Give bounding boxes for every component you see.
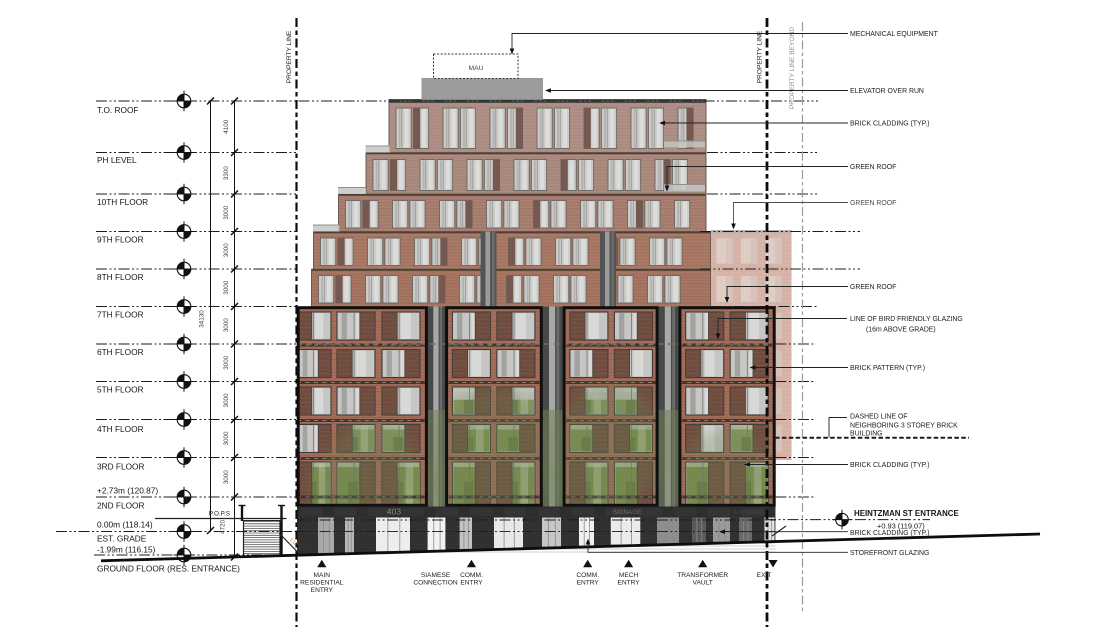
svg-text:8TH FLOOR: 8TH FLOOR bbox=[97, 272, 144, 282]
svg-text:CONNECTION: CONNECTION bbox=[413, 579, 458, 586]
svg-text:-1.99m (116.15): -1.99m (116.15) bbox=[97, 545, 156, 555]
svg-text:BRICK CLADDING (TYP.): BRICK CLADDING (TYP.) bbox=[850, 121, 930, 128]
svg-text:NEIGHBORING 3 STOREY BRICK: NEIGHBORING 3 STOREY BRICK bbox=[850, 422, 958, 429]
svg-text:3000: 3000 bbox=[223, 205, 230, 220]
svg-text:3000: 3000 bbox=[223, 243, 230, 258]
svg-text:COMM.: COMM. bbox=[460, 572, 483, 579]
svg-text:10TH FLOOR: 10TH FLOOR bbox=[97, 197, 148, 207]
svg-text:MECHANICAL EQUIPMENT: MECHANICAL EQUIPMENT bbox=[850, 31, 939, 38]
svg-text:LINE OF BIRD FRIENDLY GLAZING: LINE OF BIRD FRIENDLY GLAZING bbox=[850, 316, 963, 323]
svg-text:HEINTZMAN ST ENTRANCE: HEINTZMAN ST ENTRANCE bbox=[854, 509, 959, 518]
svg-text:TRANSFORMER: TRANSFORMER bbox=[677, 572, 728, 579]
svg-text:MAIN: MAIN bbox=[314, 572, 331, 579]
svg-text:GREEN ROOF: GREEN ROOF bbox=[850, 200, 896, 207]
svg-text:9TH FLOOR: 9TH FLOOR bbox=[97, 235, 144, 245]
svg-text:EXIT: EXIT bbox=[757, 572, 772, 579]
svg-text:34130: 34130 bbox=[199, 310, 206, 328]
svg-text:PROPERTY LINE: PROPERTY LINE bbox=[757, 30, 764, 83]
svg-text:3000: 3000 bbox=[223, 470, 230, 485]
svg-text:VAULT: VAULT bbox=[693, 579, 713, 586]
svg-text:3300: 3300 bbox=[223, 166, 230, 181]
svg-text:PH LEVEL: PH LEVEL bbox=[97, 155, 137, 165]
svg-text:ENTRY: ENTRY bbox=[577, 579, 600, 586]
svg-text:ELEVATOR OVER RUN: ELEVATOR OVER RUN bbox=[850, 88, 924, 95]
svg-text:3RD FLOOR: 3RD FLOOR bbox=[97, 462, 144, 472]
svg-text:GREEN ROOF: GREEN ROOF bbox=[850, 164, 896, 171]
svg-text:SIAMESE: SIAMESE bbox=[421, 572, 451, 579]
svg-text:GROUND FLOOR (RES. ENTRANCE): GROUND FLOOR (RES. ENTRANCE) bbox=[97, 564, 240, 574]
svg-text:3000: 3000 bbox=[223, 280, 230, 295]
svg-text:2ND FLOOR: 2ND FLOOR bbox=[97, 501, 144, 511]
svg-text:7TH FLOOR: 7TH FLOOR bbox=[97, 310, 144, 320]
svg-text:ENTRY: ENTRY bbox=[311, 587, 334, 594]
svg-text:403: 403 bbox=[387, 507, 401, 517]
svg-text:MECH: MECH bbox=[619, 572, 639, 579]
svg-text:EST. GRADE: EST. GRADE bbox=[97, 534, 147, 544]
svg-text:4720: 4720 bbox=[220, 520, 227, 535]
svg-text:4TH FLOOR: 4TH FLOOR bbox=[97, 424, 144, 434]
svg-text:4100: 4100 bbox=[223, 119, 230, 134]
svg-text:SIGNAGE: SIGNAGE bbox=[613, 509, 642, 516]
svg-text:5TH FLOOR: 5TH FLOOR bbox=[97, 385, 144, 395]
svg-text:(16m ABOVE GRADE): (16m ABOVE GRADE) bbox=[866, 327, 936, 334]
svg-text:+2.73m (120.87): +2.73m (120.87) bbox=[97, 486, 158, 496]
svg-text:STOREFRONT GLAZING: STOREFRONT GLAZING bbox=[850, 550, 929, 557]
svg-text:PROPERTY LINE BEYOND: PROPERTY LINE BEYOND bbox=[789, 27, 796, 109]
svg-text:6TH FLOOR: 6TH FLOOR bbox=[97, 347, 144, 357]
svg-text:T.O. ROOF: T.O. ROOF bbox=[97, 105, 138, 115]
svg-text:COMM.: COMM. bbox=[576, 572, 599, 579]
svg-text:BRICK CLADDING (TYP.): BRICK CLADDING (TYP.) bbox=[850, 530, 930, 537]
svg-text:RESIDENTIAL: RESIDENTIAL bbox=[300, 579, 344, 586]
svg-text:DASHED LINE OF: DASHED LINE OF bbox=[850, 414, 907, 421]
svg-text:BRICK CLADDING (TYP.): BRICK CLADDING (TYP.) bbox=[850, 462, 930, 469]
svg-text:ENTRY: ENTRY bbox=[617, 579, 640, 586]
svg-text:3000: 3000 bbox=[223, 355, 230, 370]
svg-text:ENTRANCE: ENTRANCE bbox=[734, 510, 766, 516]
svg-text:3000: 3000 bbox=[223, 393, 230, 408]
svg-text:MAU: MAU bbox=[468, 65, 483, 72]
svg-text:BRICK PATTERN (TYP.): BRICK PATTERN (TYP.) bbox=[850, 365, 925, 372]
svg-text:ENTRY: ENTRY bbox=[460, 579, 483, 586]
svg-text:GREEN ROOF: GREEN ROOF bbox=[850, 284, 896, 291]
svg-text:PROPERTY LINE: PROPERTY LINE bbox=[286, 30, 293, 83]
svg-text:P.O.P.S: P.O.P.S bbox=[209, 511, 230, 518]
svg-text:3000: 3000 bbox=[223, 431, 230, 446]
svg-text:0.00m (118.14): 0.00m (118.14) bbox=[97, 520, 153, 530]
svg-text:BUILDING: BUILDING bbox=[850, 431, 883, 438]
svg-text:3000: 3000 bbox=[223, 318, 230, 333]
